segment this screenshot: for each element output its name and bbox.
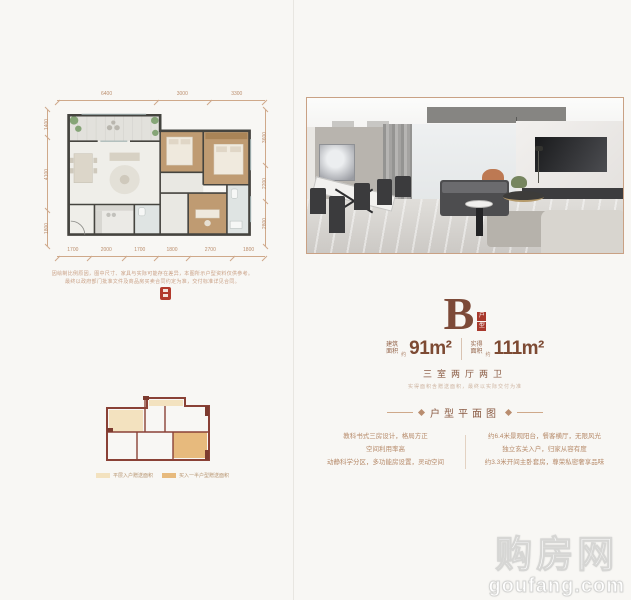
actual-area-label: 实得 面积 [471,342,483,356]
dimension-segment: 1700 [57,248,89,260]
dimension-label: 3300 [231,92,242,97]
legend-label: 买入一半户型赠送面积 [179,472,229,479]
photo-dining-chair [377,179,393,205]
approx-mark: 约 [401,351,406,358]
dimension-label: 3000 [177,92,188,97]
dimension-label: 2200 [264,178,269,189]
legend-label: 平层入户赠送面积 [113,472,153,479]
photo-dining-chair [354,183,370,209]
brochure-page: 640030003300 170020001700180027001800 14… [0,0,631,600]
actual-area-group: 实得 面积 约 111m² [471,338,544,360]
floor-plan-disclaimer: 因绘制比例原因，图中尺寸、家具与实际可能存在差异，本图所示户型资料仅供参考。 最… [35,270,270,286]
room-layout-text: 三室两厅两卫 [306,367,624,380]
dimension-segment: 3600 [260,110,272,166]
desk [196,210,220,218]
feature-item: 约6.4米景观阳台，餐客横厅，无限风光 [465,430,624,443]
photo-dining-chair [395,176,411,198]
dimension-segment: 2700 [188,248,232,260]
badge-char: 户 [477,312,486,321]
dimension-label: 4100 [46,169,51,180]
diamond-ornament-icon [418,409,425,416]
photo-dining-chair [329,196,345,233]
dimension-label: 2700 [205,248,216,253]
built-area-group: 建筑 面积 约 91m² [386,338,451,360]
dining-table [74,154,92,183]
dimension-segment: 1700 [124,248,156,260]
dimension-label: 1400 [46,119,51,130]
bathroom-2 [134,204,160,234]
photo-plant [511,176,527,188]
photo-floor-lamp [538,149,539,183]
feature-item: 动静科学分区，多功能房设置，灵动空间 [306,456,465,469]
feature-list: 教科书式三房设计，格局方正 空间利用率高 动静科学分区，多功能房设置，灵动空间 … [306,430,624,469]
coffee-table [120,175,130,184]
feature-column-left: 教科书式三房设计，格局方正 空间利用率高 动静科学分区，多功能房设置，灵动空间 [306,430,465,469]
dimension-label: 3600 [264,132,269,143]
dimension-segment: 1400 [42,110,54,138]
photo-gray-sofa [440,180,510,216]
dimension-segment: 3000 [156,92,208,104]
feature-item: 独立玄关入户，归家从容有度 [465,443,624,456]
legend-item: 平层入户赠送面积 [96,472,153,479]
wardrobe [205,133,247,139]
feature-divider [465,435,466,469]
dimension-rail-top: 640030003300 [57,92,265,104]
unit-info-block: B 户 型 建筑 面积 约 91m² 实得 面积 约 [306,293,624,390]
dimension-segment: 1800 [156,248,189,260]
approx-mark: 约 [486,351,491,358]
feature-item: 约3.3米开间主卧套房，尊荣私密奢享品味 [465,456,624,469]
dimension-rail-bottom: 170020001700180027001800 [57,248,265,260]
corridor [160,193,188,235]
photo-wall-art [320,145,355,181]
photo-floor-lamp-shade [535,146,543,151]
photo-tv [535,137,608,173]
photo-coffee-table [503,191,544,202]
area-figures: 建筑 面积 约 91m² 实得 面积 约 111m² [306,338,624,360]
legend-item: 买入一半户型赠送面积 [162,472,229,479]
watermark-chinese: 购房网 [488,535,625,576]
dimension-label: 6400 [101,92,112,97]
dimension-rail-left: 140041001800 [42,110,54,246]
mini-plan-legend: 平层入户赠送面积 买入一半户型赠送面积 [90,472,235,479]
photo-light-sofa [541,210,624,254]
watermark-url: goufang.com [488,576,625,596]
section-header: 户型平面图 [306,405,624,420]
feature-item: 空间利用率高 [306,443,465,456]
dimension-label: 2000 [101,248,112,253]
page-fold-line [293,0,294,600]
dimension-label: 2800 [264,218,269,229]
red-seal-stamp [160,287,171,300]
actual-area-value: 111m² [494,338,544,360]
main-floor-plan [60,108,256,246]
diamond-ornament-icon [505,409,512,416]
dimension-label: 1800 [243,248,254,253]
section-title: 户型平面图 [430,405,500,420]
built-area-label: 建筑 面积 [386,342,398,356]
watermark: 购房网 goufang.com [488,535,625,596]
interior-photo [306,97,624,254]
dimension-segment: 2000 [89,248,124,260]
photo-side-table [476,205,484,236]
ornament-line [517,412,543,413]
dimension-segment: 6400 [57,92,156,104]
mini-area-light-2 [149,400,183,406]
area-note: 实得面积含赠送面积，最终以实际交付为准 [306,383,624,390]
badge-char: 型 [477,322,486,331]
dimension-label: 1700 [134,248,145,253]
mini-floor-plan [97,388,219,468]
feature-item: 教科书式三房设计，格局方正 [306,430,465,443]
area-divider [461,338,462,360]
disclaimer-line-2: 最终以政府部门批准文件及商品房买卖合同约定为准，交付标准详见合同。 [35,278,270,286]
disclaimer-line-1: 因绘制比例原因，图中尺寸、家具与实际可能存在差异，本图所示户型资料仅供参考。 [35,270,270,278]
sofa [110,153,140,161]
unit-letter: B [444,293,475,334]
ornament-line [387,412,413,413]
feature-column-right: 约6.4米景观阳台，餐客横厅，无限风光 独立玄关入户，归家从容有度 约3.3米开… [465,430,624,469]
dimension-label: 1800 [166,248,177,253]
mini-area-light-1 [109,410,143,432]
hallway [160,172,203,193]
dimension-segment: 1800 [42,211,54,246]
unit-title: B 户 型 [444,293,487,334]
dimension-segment: 2200 [260,166,272,202]
photo-dining-chair [310,188,326,214]
entry [69,204,95,234]
dimension-label: 1800 [46,223,51,234]
desk-chair [204,220,210,226]
unit-type-badge: 户 型 [477,312,486,334]
dimension-segment: 1800 [232,248,265,260]
legend-swatch-light [96,473,110,478]
dimension-rail-right: 360022002800 [260,110,272,246]
dimension-label: 1700 [67,248,78,253]
dimension-segment: 2800 [260,202,272,246]
mini-area-dark [173,432,207,458]
dimension-segment: 4100 [42,138,54,211]
built-area-value: 91m² [409,338,451,360]
legend-swatch-dark [162,473,176,478]
dimension-segment: 3300 [209,92,266,104]
